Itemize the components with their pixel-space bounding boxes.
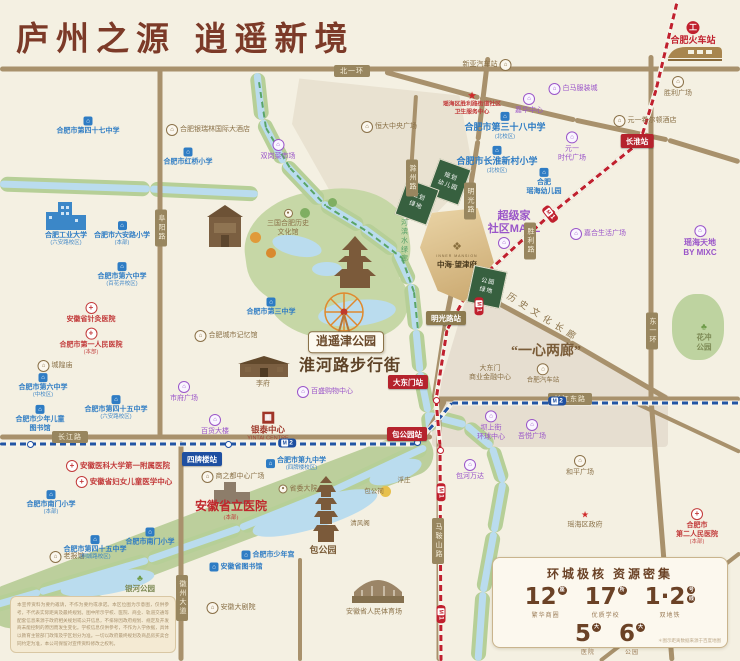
- road-name-badge: 胜利路: [524, 223, 536, 260]
- map-label-text: 胜利广场: [664, 89, 692, 98]
- stat-item: 17所优质学校: [585, 586, 627, 619]
- station-dot: [225, 441, 232, 448]
- map-label: ⌂合肥市南门小学: [126, 527, 175, 546]
- map-label: ⌂合肥市少年儿童图书馆: [16, 405, 65, 433]
- map-label-text: 花冲公园: [697, 332, 712, 352]
- map-label-text: 合肥市南门小学: [126, 537, 175, 546]
- school-icon: ⌂: [36, 405, 45, 414]
- stat-number: 12座: [525, 586, 567, 609]
- map-label-text: 大东门商业金融中心: [469, 364, 511, 382]
- map-label-text: 合肥市第六中学(百花井校区): [98, 272, 147, 288]
- map-label-text: 逍遥津公园: [316, 334, 376, 350]
- school-icon: ⌂: [91, 535, 100, 544]
- map-label: ♣花冲公园: [697, 322, 712, 352]
- map-label-text: 合肥瑶海幼儿园: [527, 178, 562, 196]
- hospital-cross-icon: +: [85, 302, 97, 314]
- road-name-badge: 马鞍山路: [432, 518, 444, 564]
- map-label: 包公祠: [364, 488, 384, 496]
- map-label-text: 包公园: [309, 545, 336, 557]
- map-label: “一心两廊”: [511, 343, 581, 361]
- station-dot: [437, 447, 444, 454]
- landmark-icon: ⌂: [207, 602, 219, 614]
- map-label-text: 合肥汽车站: [527, 376, 560, 384]
- autumn-tree-icon: [266, 248, 276, 258]
- road-name-badge: 徽州大道: [176, 575, 188, 621]
- metro-station-badge: 四牌楼站: [182, 452, 222, 466]
- map-label-text: 安徽省针灸医院: [67, 315, 116, 324]
- map-label-text: 合肥市南门小学(本部): [27, 500, 76, 516]
- pagoda-icon: [332, 236, 378, 295]
- metro-logo-icon: M: [544, 207, 554, 217]
- map-label-text: 银河公园: [125, 584, 155, 594]
- map-label-text: 合肥工业大学(六安路校区): [45, 231, 87, 247]
- school-icon: ⌂: [112, 395, 121, 404]
- map-label-text: 合肥市第四十五中学(桐城路校区): [64, 545, 127, 561]
- map-label: ⌂胜利广场: [664, 76, 692, 98]
- stat-label: 医院: [581, 647, 595, 656]
- school-icon: ⌂: [267, 297, 276, 306]
- landmark-icon: ⌂: [672, 76, 684, 88]
- stat-label: 公园: [625, 647, 639, 656]
- map-label: ⌂合肥汽车站: [527, 363, 560, 384]
- landmark-icon: ⌂: [166, 124, 178, 136]
- metro-line-2: [452, 402, 740, 405]
- road-name-badge: 明光路: [464, 183, 476, 220]
- road: [667, 138, 740, 165]
- poi-dot-icon: ●: [279, 485, 288, 494]
- stat-item: 5大医院: [575, 623, 601, 656]
- star-icon: ★: [581, 510, 589, 519]
- map-label-text: 淮河路步行街: [299, 357, 401, 378]
- map-label-text: 合肥市第六中学(中校区): [19, 383, 68, 399]
- tree-icon: ♣: [137, 574, 143, 583]
- school-icon: ⌂: [118, 221, 127, 230]
- school-icon: ⌂: [500, 112, 509, 121]
- road: [298, 558, 302, 661]
- map-label-text: 合肥市第九中学(四牌楼校区): [277, 456, 326, 472]
- map-label: ●省委大院: [279, 484, 318, 493]
- landmark-icon: ⌂: [361, 121, 373, 133]
- map-label-text: 浮庄: [398, 477, 411, 485]
- stat-item: 1·2号线双地铁: [645, 586, 696, 619]
- map-label: 大东门商业金融中心: [469, 364, 511, 382]
- mall-icon: ⌂: [464, 459, 476, 471]
- metro-logo-icon: M: [281, 440, 288, 447]
- school-icon: ⌂: [540, 168, 549, 177]
- stat-number: 17所: [585, 586, 627, 609]
- landmark-icon: ⌂: [500, 59, 512, 71]
- stat-number: 1·2号线: [645, 586, 696, 609]
- map-label-text: 合肥市第四十五中学(六安路校区): [85, 405, 148, 421]
- map-label: ⌂安徽大剧院: [207, 602, 256, 614]
- school-icon: ⌂: [242, 551, 251, 560]
- metro-logo-icon: M: [438, 608, 445, 615]
- stats-panel: 环城极核 资源密集 12座繁华商圈17所优质学校1·2号线双地铁 5大医院6大公…: [492, 557, 728, 648]
- map-label: ⌂合肥市第九中学(四牌楼校区): [266, 456, 326, 472]
- road-name-badge: 北一环: [334, 65, 370, 77]
- map-label: +安徽省针灸医院: [67, 302, 116, 324]
- mall-icon: ⌂: [526, 419, 538, 431]
- road: [179, 441, 184, 661]
- mall-icon: ⌂: [523, 93, 535, 105]
- metro-line-badge: M2: [278, 439, 296, 448]
- map-label: ⌂和平广场: [566, 455, 594, 477]
- map-label-text: 安徽省图书馆: [221, 562, 263, 571]
- map-label-text: “一心两廊”: [511, 343, 581, 361]
- map-label: 工合肥火车站: [670, 21, 715, 47]
- school-icon: ⌂: [210, 563, 219, 572]
- map-label-text: 合肥市第一人民医院(本部): [60, 341, 123, 357]
- map-label: 合肥工业大学(六安路校区): [45, 231, 87, 247]
- map-label: ⌂合肥市少年宫: [242, 550, 295, 559]
- map-label-text: 元一希尔顿酒店: [628, 116, 677, 125]
- mall-icon: ⌂: [570, 228, 582, 240]
- market-building-icon: [205, 203, 245, 256]
- map-label-text: 嘉合生活广场: [584, 229, 626, 238]
- road-name-badge: 滁州路: [406, 160, 418, 197]
- landmark-icon: ⌂: [50, 551, 62, 563]
- landmark-icon: ⌂: [202, 471, 214, 483]
- school-icon: ⌂: [266, 460, 275, 469]
- map-label: ⌂新亚汽车站: [463, 59, 512, 71]
- map-label-text: 安徽省人民体育场: [346, 607, 402, 616]
- landmark-icon: ⌂: [574, 455, 586, 467]
- map-label: ⌂合肥城市记忆馆: [195, 330, 258, 342]
- map-label: ⌂元一希尔顿酒店: [614, 115, 677, 127]
- map-label: ⌂市府广场: [170, 381, 198, 403]
- map-label-text: 城隍庙: [52, 361, 73, 370]
- tree-icon: ♣: [701, 322, 707, 331]
- stat-label: 优质学校: [592, 610, 620, 619]
- map-canvas: ❖ INNER MANSION 中海·望津府 ⌂合肥市第四十七中学⌂合肥银瑞林国…: [0, 0, 740, 661]
- autumn-tree-icon: [250, 232, 261, 243]
- map-label: ⌂: [498, 237, 510, 249]
- hospital-cross-icon: +: [85, 328, 97, 340]
- map-label: ⌂嘉合生活广场: [570, 228, 626, 240]
- metro-logo-icon: M: [551, 398, 558, 405]
- map-label: ⌂百盛购物中心: [297, 386, 353, 398]
- metro-logo-icon: M: [438, 486, 445, 493]
- map-label: ⌂合肥市第四十五中学(六安路校区): [85, 395, 148, 421]
- school-icon: ⌂: [39, 373, 48, 382]
- hospital-cross-icon: +: [66, 460, 78, 472]
- metro-line-badge: M1: [475, 297, 484, 315]
- landmark-icon: ⌂: [537, 363, 549, 375]
- map-label-text: 市府广场: [170, 394, 198, 403]
- stats-title: 环城极核 资源密集: [493, 565, 727, 582]
- metro-line-badge: M1: [437, 483, 446, 501]
- map-label-text: 合肥市第四十七中学: [57, 126, 120, 135]
- station-dot: [433, 397, 440, 404]
- hospital-cross-icon: +: [76, 476, 88, 488]
- map-label-text: 三国合肥历史文化馆: [267, 219, 309, 237]
- map-label: 清风阁: [350, 520, 370, 528]
- map-label-text: 安徽省妇女儿童医学中心: [90, 477, 173, 487]
- green-tree-icon: [328, 198, 337, 207]
- map-label: ⌂合肥市第四十七中学: [57, 116, 120, 135]
- stat-number: 5大: [575, 623, 601, 646]
- map-label-text: 清风阁: [350, 520, 370, 528]
- metro-station-badge: 明光路站: [426, 311, 466, 325]
- station-dot: [27, 441, 34, 448]
- map-label: +安徽省妇女儿童医学中心: [76, 476, 173, 488]
- project-logo-icon: ❖: [452, 240, 462, 253]
- school-icon: ⌂: [118, 262, 127, 271]
- map-label-text: 合肥市第三中学: [247, 307, 296, 316]
- mall-icon: ⌂: [498, 237, 510, 249]
- map-label-text: 安徽医科大学第一附属医院: [80, 461, 170, 471]
- map-label-text: 坝上街环球中心: [477, 423, 505, 441]
- road-name-badge: 阜阳路: [155, 210, 167, 247]
- road-name-badge: 东一环: [646, 313, 658, 350]
- map-label: ⌂合肥市红桥小学: [164, 147, 213, 166]
- stat-label: 繁华商圈: [532, 610, 560, 619]
- map-label-text: 瑶海天地BY MIXC: [683, 238, 716, 259]
- map-label: ⌂合肥银瑞林国际大酒店: [166, 124, 250, 136]
- map-label: ⌂合肥市第四十五中学(桐城路校区): [64, 535, 127, 561]
- road: [0, 67, 740, 72]
- map-label: ⌂瑶海天地BY MIXC: [683, 225, 716, 259]
- project-name-en: INNER MANSION: [436, 254, 477, 258]
- map-label-text: 恒大中央广场: [375, 122, 417, 131]
- map-label-text: 合肥火车站: [670, 35, 715, 47]
- star-icon: ★: [468, 91, 476, 100]
- map-label-text: 白马服装城: [563, 84, 598, 93]
- map-label: 安徽省立医院(本部): [195, 499, 267, 521]
- school-icon: ⌂: [492, 146, 501, 155]
- map-label: 李府: [256, 379, 270, 388]
- map-label: ⌂白马服装城: [549, 83, 598, 95]
- map-label: ⌂百货大楼: [201, 414, 229, 436]
- map-label-text: 合肥市少年宫: [253, 550, 295, 559]
- school-icon: ⌂: [84, 116, 93, 125]
- stats-row-1: 12座繁华商圈17所优质学校1·2号线双地铁: [493, 586, 727, 619]
- map-label-text: 百货大楼: [201, 427, 229, 436]
- metro-line-badge: M2: [548, 397, 566, 406]
- project-name: 中海·望津府: [437, 259, 477, 270]
- map-label: ●三国合肥历史文化馆: [267, 209, 309, 237]
- map-label: ⌂商之都中心广场: [202, 471, 265, 483]
- road: [158, 69, 163, 437]
- map-label-text: 百盛购物中心: [311, 387, 353, 396]
- metro-station-badge: 长淮站: [621, 134, 654, 148]
- map-label-text: 商之都中心广场: [216, 472, 265, 481]
- map-label-text: 吾悦广场: [518, 432, 546, 441]
- poi-dot-icon: ●: [284, 209, 293, 218]
- school-icon: ⌂: [146, 527, 155, 536]
- mall-icon: ⌂: [178, 381, 190, 393]
- map-label: ⌂元一时代广场: [558, 131, 586, 162]
- hospital-cross-icon: +: [691, 508, 703, 520]
- map-label: +安徽医科大学第一附属医院: [66, 460, 170, 472]
- university-building-icon: [44, 202, 90, 235]
- stats-footnote: ＊图示距离数据来源于百度地图: [658, 638, 721, 644]
- school-icon: ⌂: [47, 490, 56, 499]
- map-label: ★瑶海区政府: [568, 510, 603, 529]
- yintai-logo-icon: ▦: [262, 412, 274, 424]
- disclaimer-box: 本宣传资料为要约邀请，不作为要约或承诺。本区位图为示意图，仅供参考，不代表实际距…: [10, 596, 176, 653]
- map-label: 包公园: [309, 545, 336, 557]
- railway-logo-icon: 工: [686, 21, 699, 34]
- map-label-text: 新亚汽车站: [463, 60, 498, 69]
- map-label-text: 和平广场: [566, 468, 594, 477]
- metro-station-badge: 包公园站: [387, 427, 427, 441]
- map-label: 安徽省人民体育场: [346, 607, 402, 616]
- mall-icon: ⌂: [694, 225, 706, 237]
- map-label: ⌂吾悦广场: [518, 419, 546, 441]
- map-label: 浮庄: [398, 477, 411, 485]
- map-label: ♣银河公园: [125, 574, 155, 594]
- map-label-text: 元一时代广场: [558, 144, 586, 162]
- mall-icon: ⌂: [209, 414, 221, 426]
- mall-icon: ⌂: [485, 410, 497, 422]
- map-label: ⌂合肥市第三十八中学(北校区): [464, 112, 545, 140]
- stat-number: 6大: [619, 623, 645, 646]
- map-label-text: 合肥市第三十八中学(北校区): [464, 122, 545, 140]
- map-label-text: 安徽大剧院: [221, 603, 256, 612]
- stat-item: 6大公园: [619, 623, 645, 656]
- map-label: ⌂合肥市第三中学: [247, 297, 296, 316]
- school-icon: ⌂: [184, 147, 193, 156]
- map-label: +合肥市第二人民医院(本部): [676, 508, 718, 546]
- page-title: 庐州之源 逍遥新境: [16, 12, 355, 60]
- map-label: ⌂城隍庙: [38, 360, 73, 372]
- landmark-icon: ⌂: [38, 360, 50, 372]
- mall-icon: ⌂: [297, 386, 309, 398]
- metro-station-badge: 大东门站: [388, 375, 428, 389]
- stat-item: 12座繁华商圈: [525, 586, 567, 619]
- stadium-icon: [350, 568, 406, 611]
- landmark-icon: ⌂: [614, 115, 626, 127]
- map-label-text: 合肥市第二人民医院(本部): [676, 521, 718, 546]
- map-label-text: 合肥市六安路小学(本部): [94, 231, 150, 247]
- map-label-text: 李府: [256, 379, 270, 388]
- mall-icon: ⌂: [549, 83, 561, 95]
- map-label: 淮河路步行街: [299, 357, 401, 378]
- map-label: ⌂合肥瑶海幼儿园: [527, 168, 562, 196]
- map-label: ⌂合肥市第六中学(中校区): [19, 373, 68, 399]
- map-label-text: 合肥银瑞林国际大酒店: [180, 125, 250, 134]
- map-label: ⌂合肥市六安路小学(本部): [94, 221, 150, 247]
- map-label-text: 包公祠: [364, 488, 384, 496]
- map-label-text: 瑶海区政府: [568, 520, 603, 529]
- map-label-text: 包河万达: [456, 472, 484, 481]
- map-label: ⌂坝上街环球中心: [477, 410, 505, 441]
- map-label-text: 安徽省立医院(本部): [195, 499, 267, 521]
- map-label: ⌂安徽省图书馆: [210, 562, 263, 571]
- metro-line-badge: M1: [437, 605, 446, 623]
- map-label: +合肥市第一人民医院(本部): [60, 328, 123, 357]
- stat-label: 双地铁: [660, 610, 681, 619]
- road-name-badge: 长江路: [52, 431, 88, 443]
- mall-icon: ⌂: [272, 139, 284, 151]
- map-label-text: 双岗菜市场: [261, 152, 296, 161]
- map-label: 逍遥津公园: [308, 331, 384, 353]
- map-label: ⌂双岗菜市场: [261, 139, 296, 161]
- map-label: ⌂合肥市第六中学(百花井校区): [98, 262, 147, 288]
- map-label-text: 合肥市红桥小学: [164, 157, 213, 166]
- metro-logo-icon: M: [476, 300, 483, 307]
- map-label: ⌂合肥市南门小学(本部): [27, 490, 76, 516]
- landmark-icon: ⌂: [195, 330, 207, 342]
- map-label: ⌂包河万达: [456, 459, 484, 481]
- map-label: ⌂恒大中央广场: [361, 121, 417, 133]
- map-label-text: 合肥城市记忆馆: [209, 331, 258, 340]
- mall-icon: ⌂: [566, 131, 578, 143]
- map-label-text: 省委大院: [290, 484, 318, 493]
